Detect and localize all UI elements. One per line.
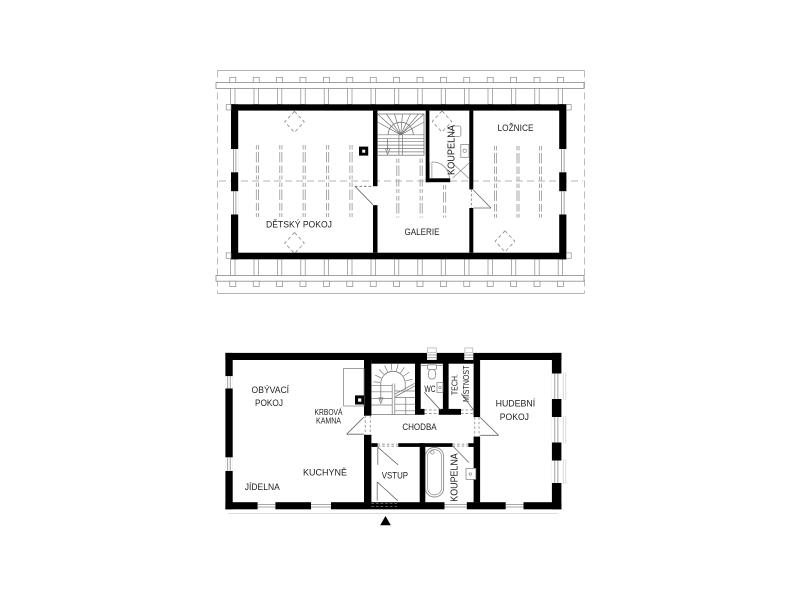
svg-text:GALERIE: GALERIE <box>405 227 440 237</box>
svg-text:DĚTSKÝ POKOJ: DĚTSKÝ POKOJ <box>266 220 332 230</box>
svg-text:CHODBA: CHODBA <box>402 422 437 432</box>
svg-text:KUCHYNĚ: KUCHYNĚ <box>303 468 347 479</box>
svg-text:MÍSTNOST: MÍSTNOST <box>462 365 471 402</box>
svg-text:WC: WC <box>424 384 435 394</box>
svg-text:LOŽNICE: LOŽNICE <box>498 123 534 133</box>
svg-text:VSTUP: VSTUP <box>382 471 408 481</box>
svg-text:KAMNA: KAMNA <box>316 416 342 425</box>
svg-text:TECH.: TECH. <box>451 374 460 395</box>
svg-text:HUDEBNÍ: HUDEBNÍ <box>496 399 536 409</box>
svg-text:KOUPELNA: KOUPELNA <box>449 453 460 502</box>
svg-text:POKOJ: POKOJ <box>500 412 529 422</box>
svg-text:KOUPELNA: KOUPELNA <box>447 125 458 175</box>
svg-text:JÍDELNA: JÍDELNA <box>245 482 281 492</box>
svg-text:POKOJ: POKOJ <box>255 398 283 408</box>
svg-text:OBÝVACÍ: OBÝVACÍ <box>252 385 290 395</box>
